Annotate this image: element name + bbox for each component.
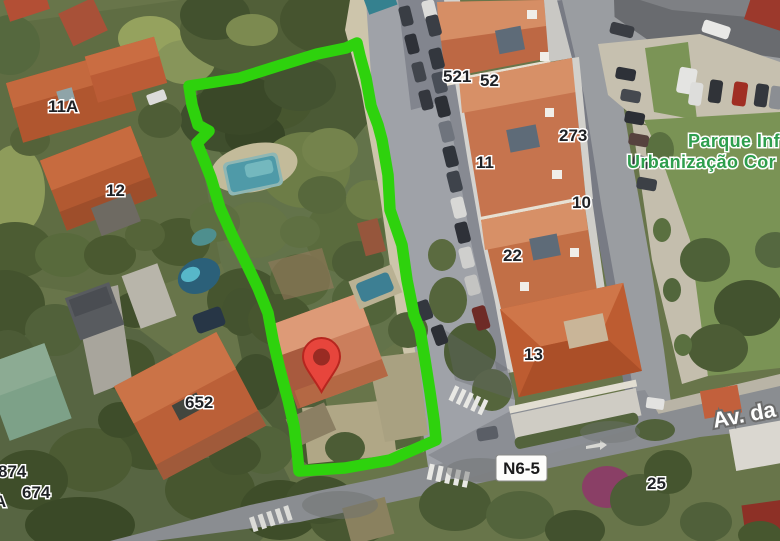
svg-text:10: 10 <box>572 193 591 212</box>
svg-text:521: 521 <box>443 67 471 86</box>
svg-text:874: 874 <box>0 462 27 481</box>
svg-text:A: A <box>0 492 6 511</box>
svg-text:Parque Inf: Parque Inf <box>688 131 780 151</box>
svg-text:12: 12 <box>106 181 125 200</box>
svg-text:11A: 11A <box>48 97 78 116</box>
svg-text:N6-5: N6-5 <box>503 459 540 478</box>
svg-text:652: 652 <box>185 393 213 412</box>
svg-text:22: 22 <box>503 246 522 265</box>
svg-text:674: 674 <box>22 483 51 502</box>
svg-text:25: 25 <box>647 474 666 493</box>
svg-text:52: 52 <box>480 71 499 90</box>
svg-text:13: 13 <box>524 345 543 364</box>
svg-text:Urbanização Cor: Urbanização Cor <box>627 152 776 172</box>
svg-text:273: 273 <box>559 126 587 145</box>
svg-text:11: 11 <box>476 153 494 172</box>
